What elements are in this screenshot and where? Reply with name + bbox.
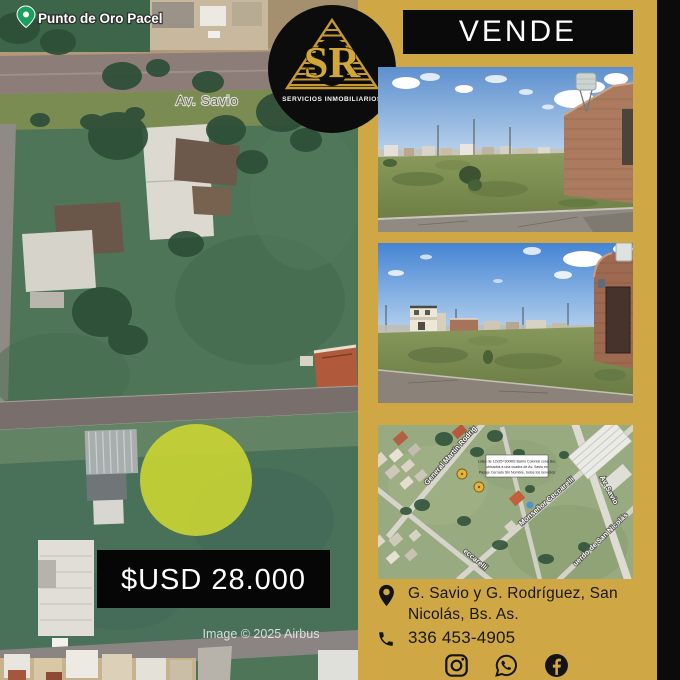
address-line-2: Nicolás, Bs. As. xyxy=(408,606,519,623)
water-tank xyxy=(616,243,632,261)
phone-row: 336 453-4905 xyxy=(375,628,647,648)
lot-photo-2 xyxy=(378,243,633,403)
street-label-av-savio: Av. Savio xyxy=(176,93,239,108)
location-pin-icon xyxy=(375,584,397,607)
address-line-1: G. Savio y G. Rodríguez, San xyxy=(408,585,618,602)
lot-photo-1 xyxy=(378,67,633,232)
top-buildings xyxy=(148,0,268,50)
info-line-2: ubicados a una cuadra de Av. Savio en xyxy=(486,465,548,469)
vende-banner: VENDE xyxy=(403,10,633,54)
logo-monogram: SR xyxy=(304,38,361,87)
vende-label: VENDE xyxy=(459,15,577,49)
info-line-1: Lotes de 12x25=300M2 Barrio Colonial zon… xyxy=(478,460,556,464)
small-plant xyxy=(483,350,493,364)
info-line-3: Pasaje Cerrado Sin Nombre, todos los ser… xyxy=(479,471,556,475)
white-warehouse xyxy=(38,540,94,647)
location-mini-map: Lotes de 12x25=300M2 Barrio Colonial zon… xyxy=(378,425,633,579)
address-row: G. Savio y G. Rodríguez, San Nicolás, Bs… xyxy=(375,583,647,625)
facebook-icon[interactable] xyxy=(544,653,569,678)
dark-door xyxy=(606,287,630,353)
flyer: Punto de Oro Pacel Av. Savio $USD 28.000… xyxy=(0,0,680,680)
imagery-credit: Image © 2025 Airbus xyxy=(203,627,320,641)
phone-icon xyxy=(375,630,397,648)
right-black-strip xyxy=(657,0,680,680)
price-text: $USD 28.000 xyxy=(121,564,306,596)
price-tag: $USD 28.000 xyxy=(97,550,330,608)
phone-number: 336 453-4905 xyxy=(408,628,515,648)
info-box: Lotes de 12x25=300M2 Barrio Colonial zon… xyxy=(478,455,556,477)
lot-highlight-circle xyxy=(140,424,252,536)
whatsapp-icon[interactable] xyxy=(494,653,519,678)
logo-subtitle: SERVICIOS INMOBILIARIOS xyxy=(282,96,382,103)
contact-block: G. Savio y G. Rodríguez, San Nicolás, Bs… xyxy=(375,583,647,678)
instagram-icon[interactable] xyxy=(444,653,469,678)
pin-label: Punto de Oro Pacel xyxy=(38,11,163,26)
social-icons-row xyxy=(375,653,647,678)
dark-window xyxy=(622,109,633,165)
